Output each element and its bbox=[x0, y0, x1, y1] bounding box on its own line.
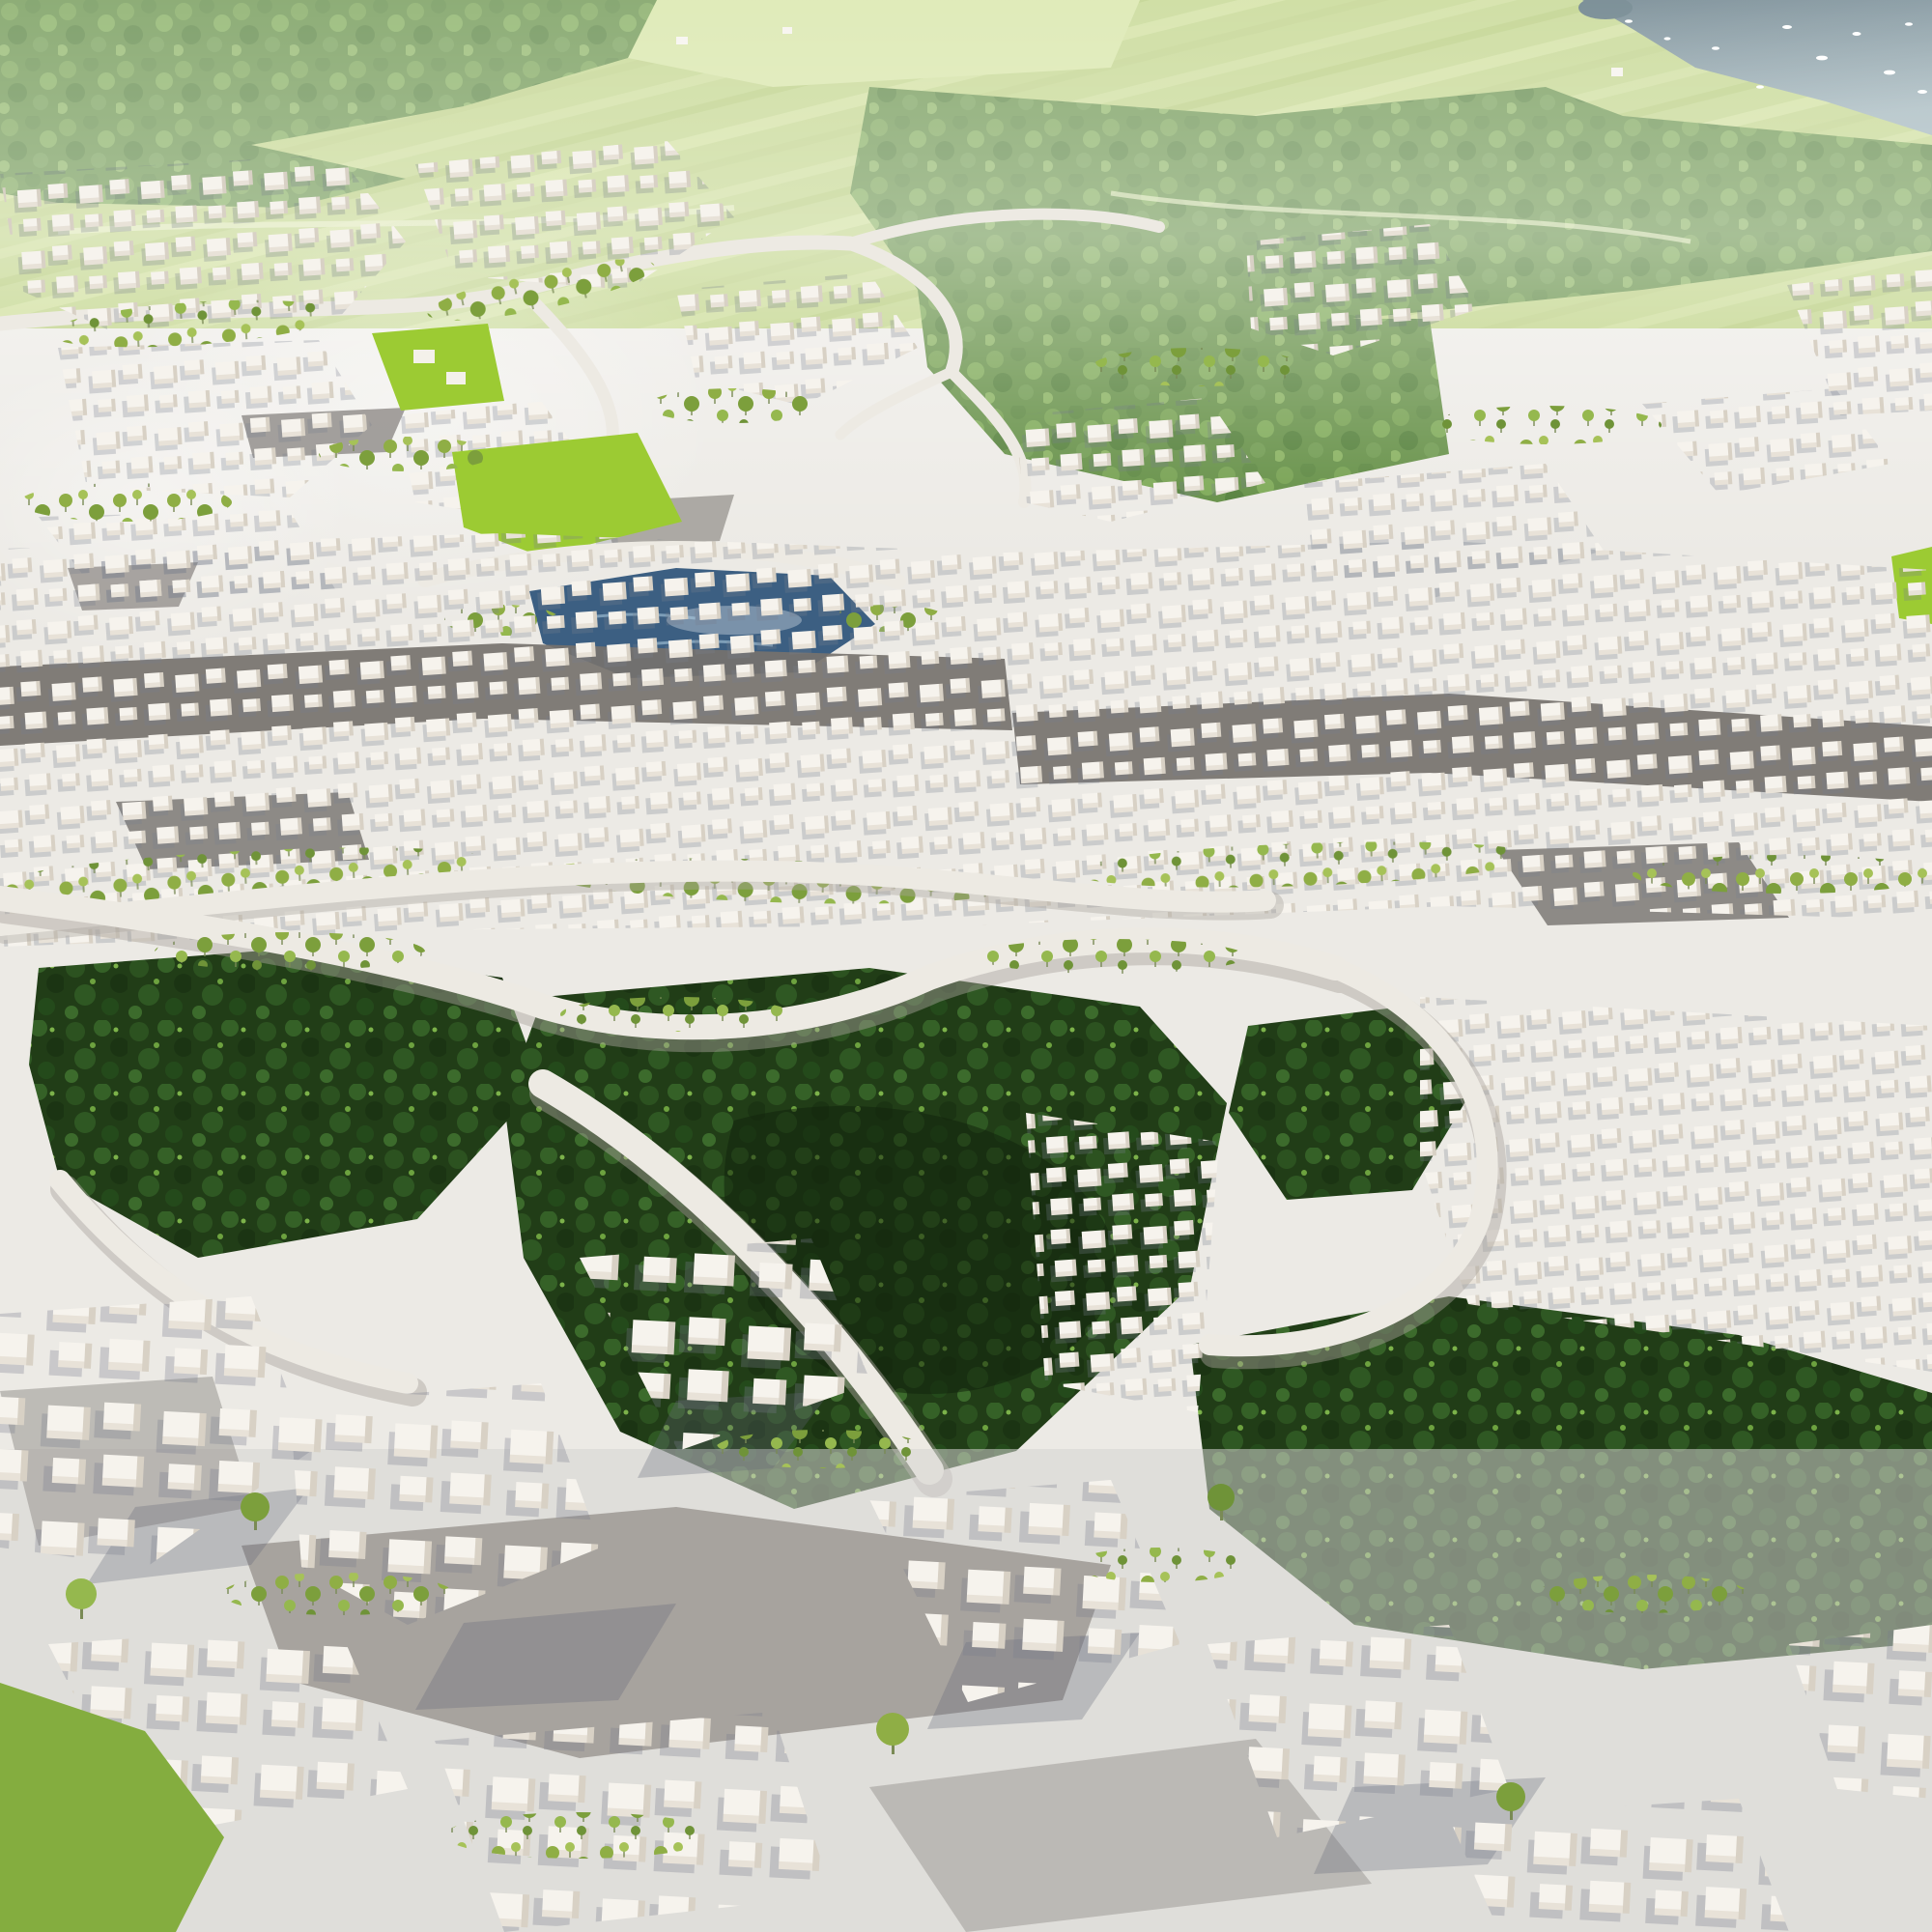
lawn-pavilion bbox=[446, 372, 466, 384]
aerial-city-render bbox=[0, 0, 1932, 1932]
lawn-pavilion bbox=[413, 350, 435, 363]
canyon-towers bbox=[1026, 1113, 1219, 1412]
render-canvas bbox=[0, 0, 1932, 1932]
mid-city-band bbox=[0, 533, 1932, 947]
